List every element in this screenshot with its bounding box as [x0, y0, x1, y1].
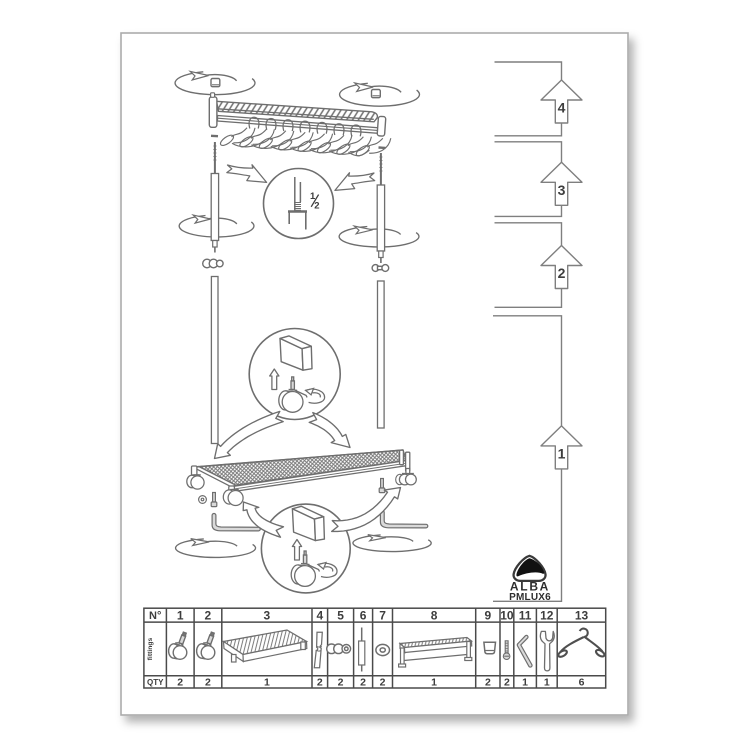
svg-text:12: 12 — [540, 609, 554, 623]
svg-text:PMLUX6: PMLUX6 — [509, 592, 551, 603]
svg-text:2: 2 — [205, 609, 212, 623]
svg-text:2: 2 — [314, 201, 319, 212]
svg-text:2: 2 — [177, 677, 183, 689]
svg-text:2: 2 — [504, 677, 510, 689]
svg-text:3: 3 — [264, 609, 271, 623]
svg-text:5: 5 — [337, 609, 344, 623]
svg-text:QTY: QTY — [147, 678, 164, 687]
svg-text:1: 1 — [431, 677, 437, 689]
svg-text:9: 9 — [485, 609, 492, 623]
svg-text:2: 2 — [380, 677, 386, 689]
svg-text:2: 2 — [205, 677, 211, 689]
svg-text:2: 2 — [360, 677, 366, 689]
svg-text:7: 7 — [379, 609, 386, 623]
svg-text:13: 13 — [575, 609, 589, 623]
svg-text:2: 2 — [485, 677, 491, 689]
svg-text:N°: N° — [149, 610, 161, 622]
svg-text:fittings: fittings — [147, 637, 154, 660]
svg-text:6: 6 — [579, 677, 585, 689]
svg-text:8: 8 — [431, 609, 438, 623]
svg-text:2: 2 — [338, 677, 344, 689]
svg-text:2: 2 — [558, 265, 566, 281]
svg-text:2: 2 — [317, 677, 323, 689]
svg-text:4: 4 — [558, 100, 566, 116]
svg-text:10: 10 — [500, 609, 514, 623]
svg-text:1: 1 — [544, 677, 550, 689]
svg-text:11: 11 — [519, 609, 532, 623]
svg-text:6: 6 — [360, 609, 367, 623]
svg-text:4: 4 — [316, 609, 323, 623]
svg-text:1: 1 — [177, 609, 184, 623]
svg-text:1: 1 — [522, 677, 528, 689]
svg-text:1: 1 — [264, 677, 270, 689]
svg-text:3: 3 — [558, 182, 566, 198]
svg-text:1: 1 — [558, 445, 566, 461]
